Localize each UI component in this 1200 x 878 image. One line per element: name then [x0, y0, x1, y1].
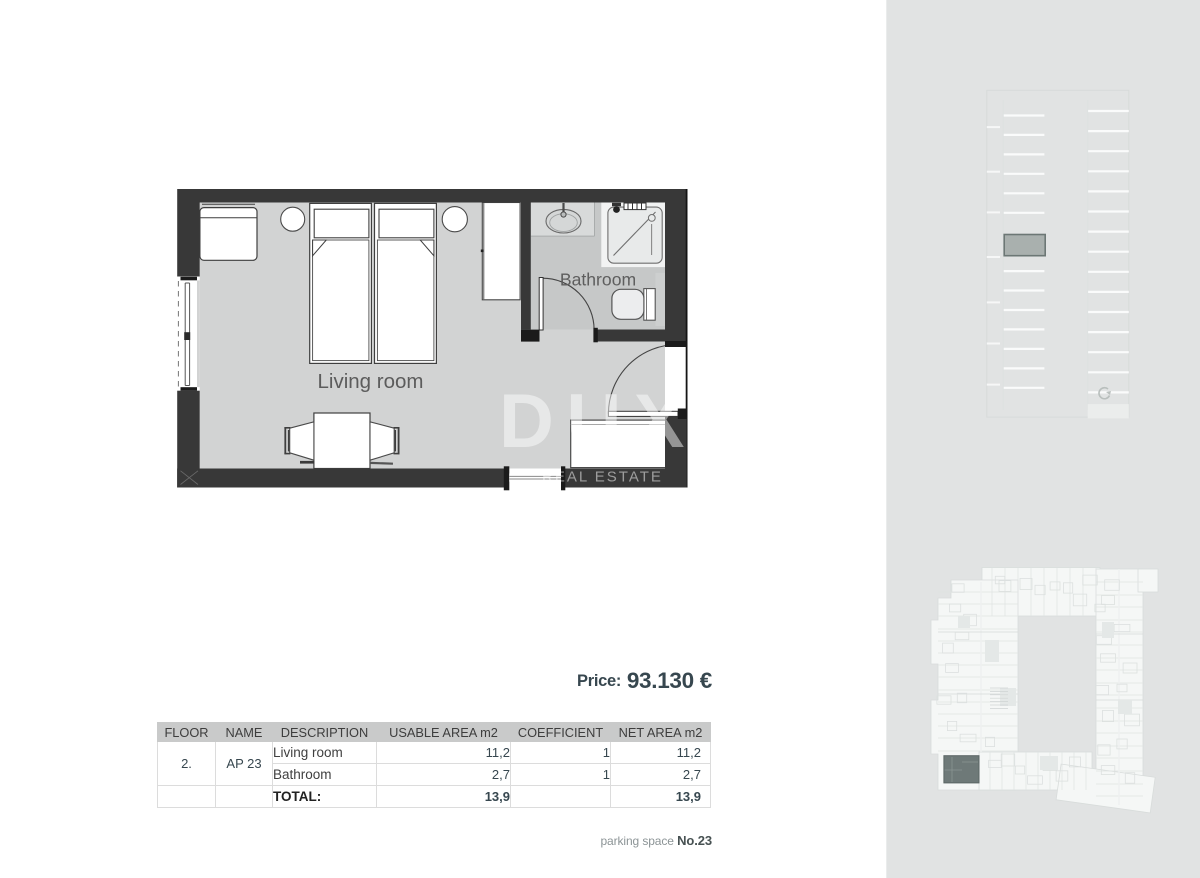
svg-text:Bathroom: Bathroom: [560, 270, 636, 290]
svg-text:DUX: DUX: [499, 379, 697, 464]
svg-text:REAL ESTATE: REAL ESTATE: [542, 469, 663, 486]
svg-text:Living room: Living room: [318, 370, 424, 393]
